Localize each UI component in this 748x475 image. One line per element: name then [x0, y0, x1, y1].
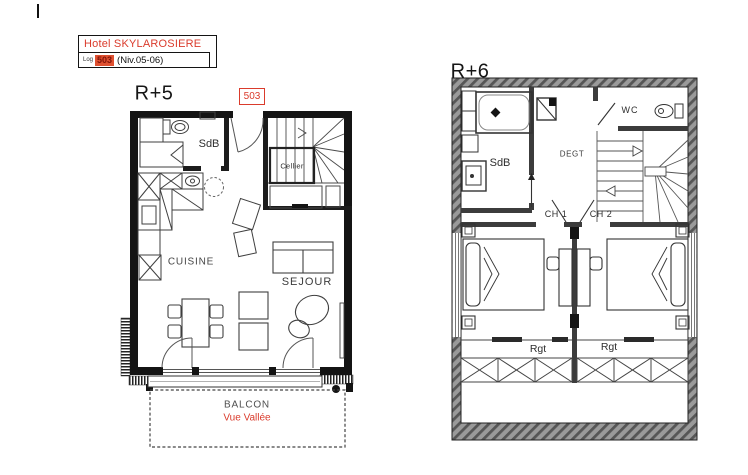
- room-label-sejour: SEJOUR: [282, 276, 333, 288]
- dining-table-icon: [168, 299, 223, 347]
- partitions-r5: [183, 118, 352, 210]
- balcony-label: BALCON: [224, 400, 270, 411]
- hotel-name: Hotel SKYLAROSIERE: [84, 38, 201, 50]
- floor-plan-sheet: Hotel SKYLAROSIERE Log 503 (Niv.05-06) R…: [0, 0, 748, 475]
- stair-down-arrow: [606, 186, 615, 196]
- chair-icon: [547, 257, 559, 270]
- storage-label-right: Rgt: [601, 341, 617, 353]
- title-block: Hotel SKYLAROSIERE Log 503 (Niv.05-06): [78, 35, 217, 68]
- level-range: (Niv.05-06): [117, 55, 163, 66]
- room-label-degt: DEGT: [560, 150, 585, 159]
- storage-label-left: Rgt: [530, 343, 546, 355]
- unit-badge-503: 503: [239, 88, 265, 105]
- round-table-icon: [205, 178, 224, 197]
- title-block-row-hotel: Hotel SKYLAROSIERE: [79, 36, 216, 52]
- stair-direction-arrow: [298, 128, 306, 138]
- toilet-icon: [163, 120, 189, 134]
- pouf-icon: [239, 292, 268, 319]
- door-fold-mark: [171, 145, 183, 164]
- washbasin-icon: [462, 161, 486, 191]
- room-label-wc: WC: [622, 105, 639, 115]
- oven-icon: [138, 200, 160, 230]
- bathroom-r6: [462, 91, 556, 191]
- sofa-icon: [273, 242, 333, 273]
- bedroom-2-furniture: [577, 224, 689, 329]
- room-label-sdb-r6: SdB: [490, 157, 511, 169]
- entry-door: [231, 118, 263, 152]
- nightstand-icon: [462, 316, 475, 329]
- floor-label-r6: R+6: [451, 61, 490, 84]
- desk-icon: [577, 249, 590, 306]
- bed-icon: [463, 239, 544, 310]
- closet-icon: [140, 118, 163, 142]
- room-label-ch1: CH 1: [545, 209, 568, 219]
- floorplan-drawing: [0, 0, 748, 475]
- chair-icon: [590, 257, 602, 270]
- plan-r6: [452, 78, 697, 440]
- room-label-ch2: CH 2: [590, 209, 613, 219]
- kitchen-cart-icon: [232, 199, 260, 230]
- wardrobe-icon: [140, 142, 183, 167]
- outer-walls-r5: [130, 111, 353, 393]
- desk-icon: [559, 249, 572, 306]
- toilet-icon: [655, 104, 683, 118]
- window-icon: [453, 233, 461, 337]
- doors-r6: [528, 103, 615, 222]
- sink-icon: [186, 176, 200, 186]
- stair-up-arrow: [633, 146, 642, 156]
- wc-r6: [655, 104, 683, 118]
- window-icon: [688, 233, 696, 337]
- title-block-row-unit: Log 503 (Niv.05-06): [79, 52, 210, 67]
- balcony-doors-r5: [148, 338, 322, 387]
- lounge-chair-icon: [286, 290, 333, 340]
- bed-icon: [607, 239, 688, 310]
- balcony-view-label: Vue Vallée: [223, 413, 270, 424]
- bedroom-1-furniture: [462, 224, 572, 329]
- water-heater-icon: [537, 98, 556, 120]
- nightstand-icon: [676, 316, 689, 329]
- log-label: Log: [83, 57, 93, 63]
- stair-newel: [645, 167, 666, 176]
- room-label-cellier: Cellier: [280, 162, 303, 171]
- bathtub-icon: [476, 92, 532, 133]
- floor-label-r5: R+5: [135, 83, 174, 106]
- room-label-sdb-r5: SdB: [199, 138, 220, 150]
- radiator-icon: [340, 303, 344, 358]
- unit-number-chip: 503: [95, 55, 114, 66]
- room-label-cuisine: CUISINE: [168, 257, 214, 268]
- pouf-icon: [239, 323, 268, 350]
